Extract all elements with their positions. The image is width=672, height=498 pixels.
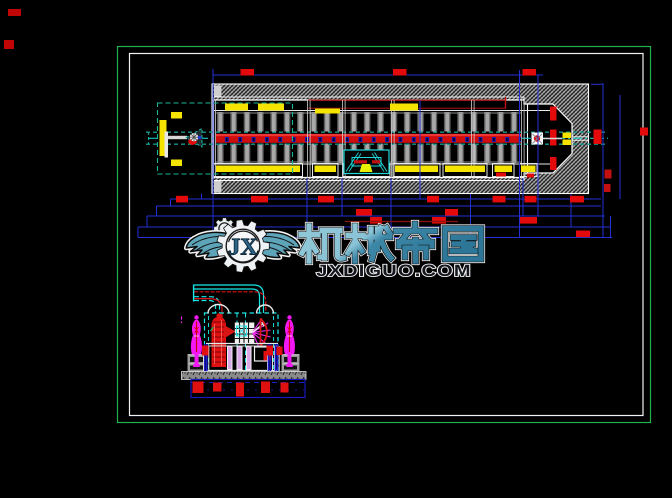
- svg-text:JXDIGUO.COM: JXDIGUO.COM: [316, 262, 471, 280]
- svg-text:JX: JX: [228, 235, 258, 261]
